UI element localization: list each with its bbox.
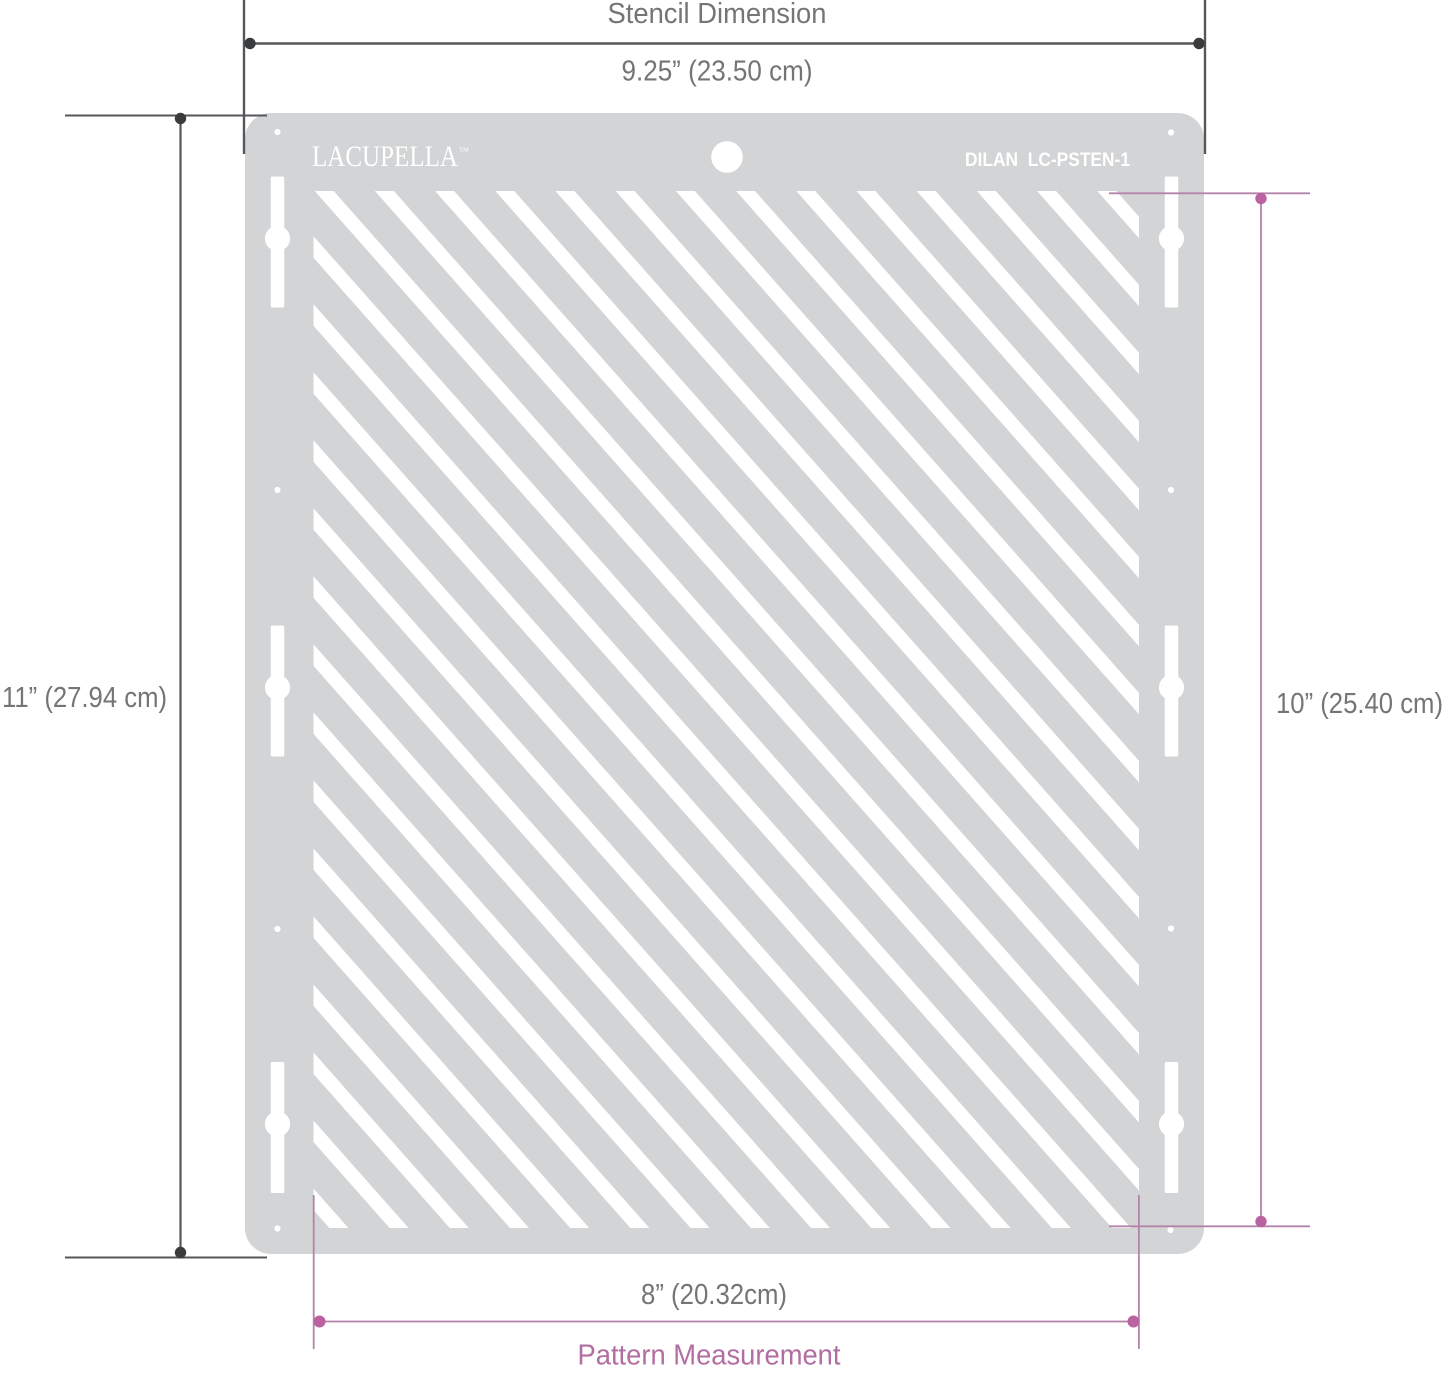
svg-text:8” (20.32cm): 8” (20.32cm) [641, 1279, 787, 1311]
svg-text:9.25” (23.50 cm): 9.25” (23.50 cm) [622, 56, 813, 88]
svg-text:10” (25.40 cm): 10” (25.40 cm) [1276, 688, 1443, 720]
svg-text:Pattern Measurement: Pattern Measurement [578, 1340, 841, 1372]
svg-text:TM: TM [459, 147, 469, 154]
svg-text:DILAN LC-PSTEN-1: DILAN LC-PSTEN-1 [965, 150, 1130, 171]
svg-text:11” (27.94 cm): 11” (27.94 cm) [2, 682, 167, 714]
svg-text:LACUPELLA: LACUPELLA [312, 140, 458, 173]
svg-text:Stencil Dimension: Stencil Dimension [608, 0, 827, 30]
